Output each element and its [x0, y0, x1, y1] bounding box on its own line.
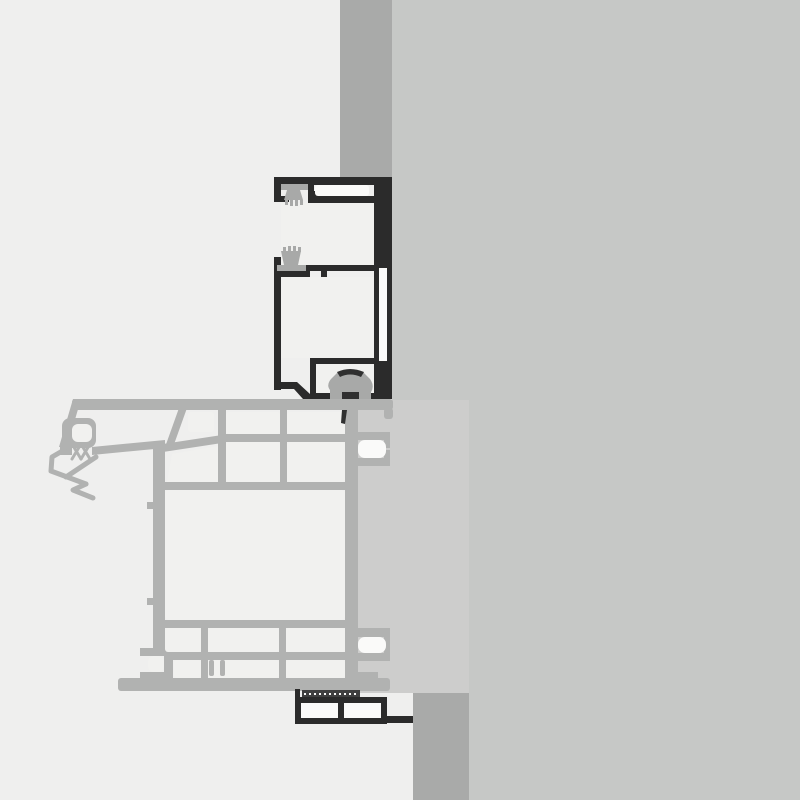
- sash-clip-bottom-lip: [140, 672, 164, 680]
- bump-1: [209, 660, 214, 676]
- tclip1-slot: [358, 440, 386, 458]
- bump-2: [220, 660, 225, 676]
- chamber: [287, 442, 345, 482]
- wall-section-top: [340, 0, 392, 178]
- brush-bristle: [298, 247, 301, 252]
- sash-tclip2-arm-bottom: [358, 653, 390, 661]
- brush-bristle: [295, 200, 298, 206]
- frame-chamber-top: [310, 358, 380, 364]
- sash-right-rail: [345, 399, 358, 691]
- frame-left-wall-upper: [274, 177, 281, 202]
- technical-drawing: [0, 0, 800, 800]
- brush-seal-top-stem: [284, 190, 303, 200]
- sash-bottom-right-foot: [358, 672, 378, 691]
- chamber: [287, 412, 345, 434]
- chamber: [286, 660, 345, 678]
- bead-flange: [387, 716, 413, 723]
- frame-slot-bottom: [308, 196, 374, 203]
- frame-mid-web: [310, 265, 374, 271]
- frame-channel-bottom: [274, 271, 310, 277]
- tclip2-slot: [358, 637, 386, 653]
- cross-section-svg: [0, 0, 800, 800]
- chamber: [165, 628, 201, 652]
- frame-chamber-divider: [310, 358, 316, 399]
- chamber: [226, 442, 280, 482]
- wall-section-bottom: [413, 693, 469, 800]
- sash-rail-end-step: [384, 408, 393, 419]
- clip-pocket: [148, 656, 164, 672]
- chamber: [188, 412, 214, 432]
- frame-divider: [308, 177, 314, 197]
- brush-bristle: [283, 247, 286, 252]
- background-gap-lower: [392, 693, 413, 800]
- brush-seal-top-bar: [281, 184, 308, 190]
- chamber: [286, 628, 345, 652]
- bead-chamber-1: [301, 703, 338, 718]
- brush-bristle: [300, 200, 303, 205]
- sash-vertical-divider-2: [280, 408, 287, 490]
- sash-tclip1-arm-top: [358, 432, 390, 440]
- sash-vertical-divider-1: [218, 408, 226, 490]
- brush-bristle: [293, 246, 296, 252]
- frame-top-slot: [315, 185, 369, 196]
- sash-horizontal-divider-3: [160, 620, 358, 628]
- sash-horizontal-divider-1: [222, 434, 350, 442]
- chamber: [208, 660, 279, 678]
- bead-left-tick: [295, 689, 300, 698]
- bead-chamber-2: [344, 703, 381, 718]
- brush-bristle: [285, 200, 288, 205]
- frame-wall-slit: [379, 268, 387, 361]
- bulb-gasket-notch: [342, 392, 359, 399]
- brush-bristle: [290, 200, 293, 206]
- sash-horizontal-divider-2: [160, 482, 350, 490]
- chamber-main: [165, 490, 345, 620]
- chamber: [226, 412, 280, 434]
- brush-seal-mid-stem: [281, 251, 301, 265]
- sash-top-rail: [72, 399, 393, 410]
- frame-chamber-mid: [281, 277, 374, 358]
- sash-clip-stem: [164, 648, 173, 682]
- chamber: [208, 628, 279, 652]
- sash-horizontal-divider-4: [165, 652, 350, 660]
- brush-seal-mid-bar: [277, 265, 306, 271]
- sash-tclip1-arm-bottom: [358, 458, 390, 466]
- brush-bristle: [288, 246, 291, 252]
- chamber: [174, 660, 201, 678]
- sash-left-nub-2: [147, 598, 153, 605]
- sash-tclip2-arm-top: [358, 628, 390, 637]
- hook-pocket: [72, 424, 92, 442]
- sash-left-nub-1: [147, 502, 153, 509]
